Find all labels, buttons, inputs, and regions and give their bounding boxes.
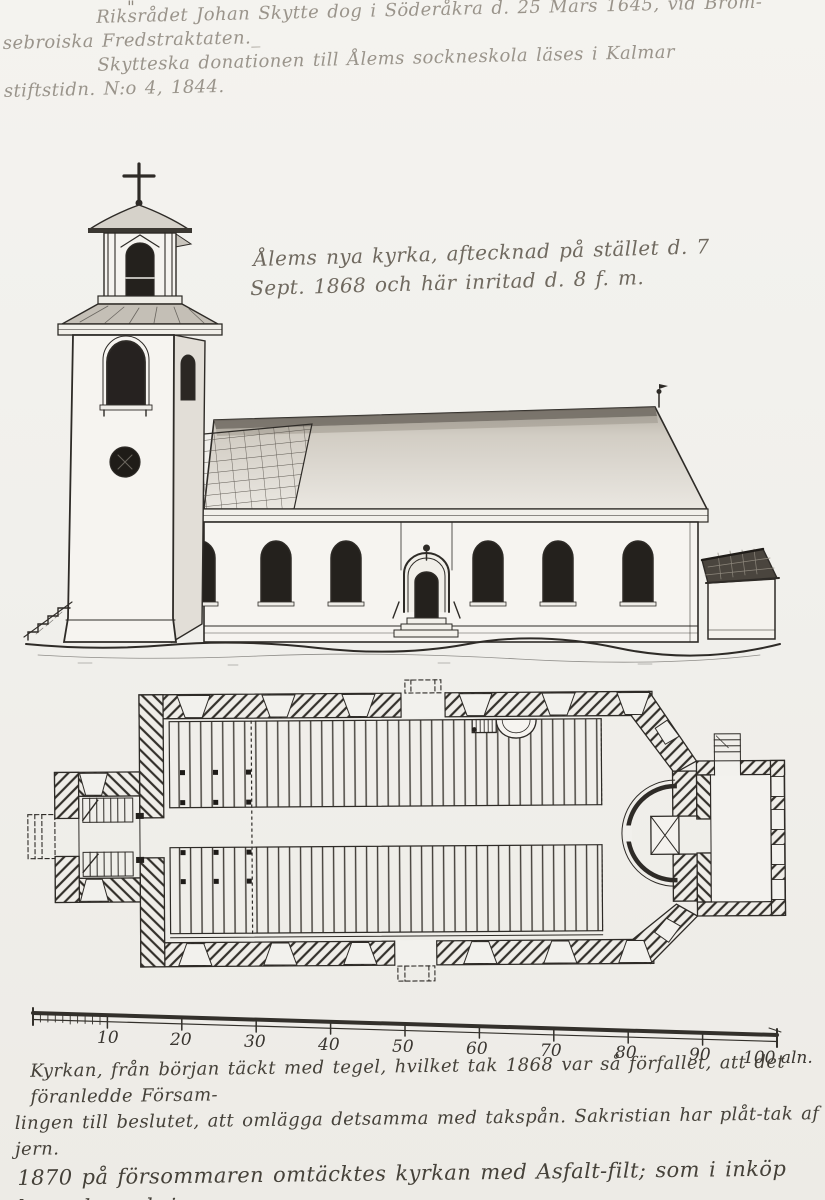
nave-roof <box>158 384 707 509</box>
scale-tick-label: 20 <box>169 1030 192 1050</box>
pew-blocks <box>169 719 602 938</box>
west-steps-dashed <box>28 815 55 859</box>
bottom-handwritten-notes: Kyrkan, från början täckt med tegel, hvi… <box>14 1049 824 1200</box>
bottom-note-line: Kyrkan, från början täckt med tegel, hvi… <box>30 1049 823 1111</box>
scale-tick-label: 30 <box>244 1032 266 1052</box>
south-door-opening <box>395 940 437 966</box>
scale-tick-label: 40 <box>317 1035 340 1055</box>
tower-stairs <box>83 798 134 876</box>
church-floor-plan <box>19 675 811 1011</box>
scale-tick-label: 10 <box>97 1028 119 1048</box>
church-elevation-drawing <box>18 150 810 672</box>
cross-finial <box>124 164 154 202</box>
sacristy-annex <box>702 549 779 639</box>
archive-photo-page: " Riksrådet Johan Skytte dog i Söderåkra… <box>0 0 825 1200</box>
pews-north <box>169 719 602 808</box>
church-tower <box>58 164 222 642</box>
chancel <box>622 771 698 902</box>
top-handwritten-notes: Riksrådet Johan Skytte dog i Söderåkra d… <box>0 0 772 104</box>
sacristy-door-opening <box>714 760 740 776</box>
ridge-finial <box>657 389 662 394</box>
north-door-opening <box>401 692 445 718</box>
sacristy-plan <box>696 733 785 916</box>
sacristy-outer-steps <box>714 734 740 761</box>
tower-window <box>107 341 145 405</box>
pews-south <box>170 845 603 934</box>
tower-plan <box>27 772 144 903</box>
